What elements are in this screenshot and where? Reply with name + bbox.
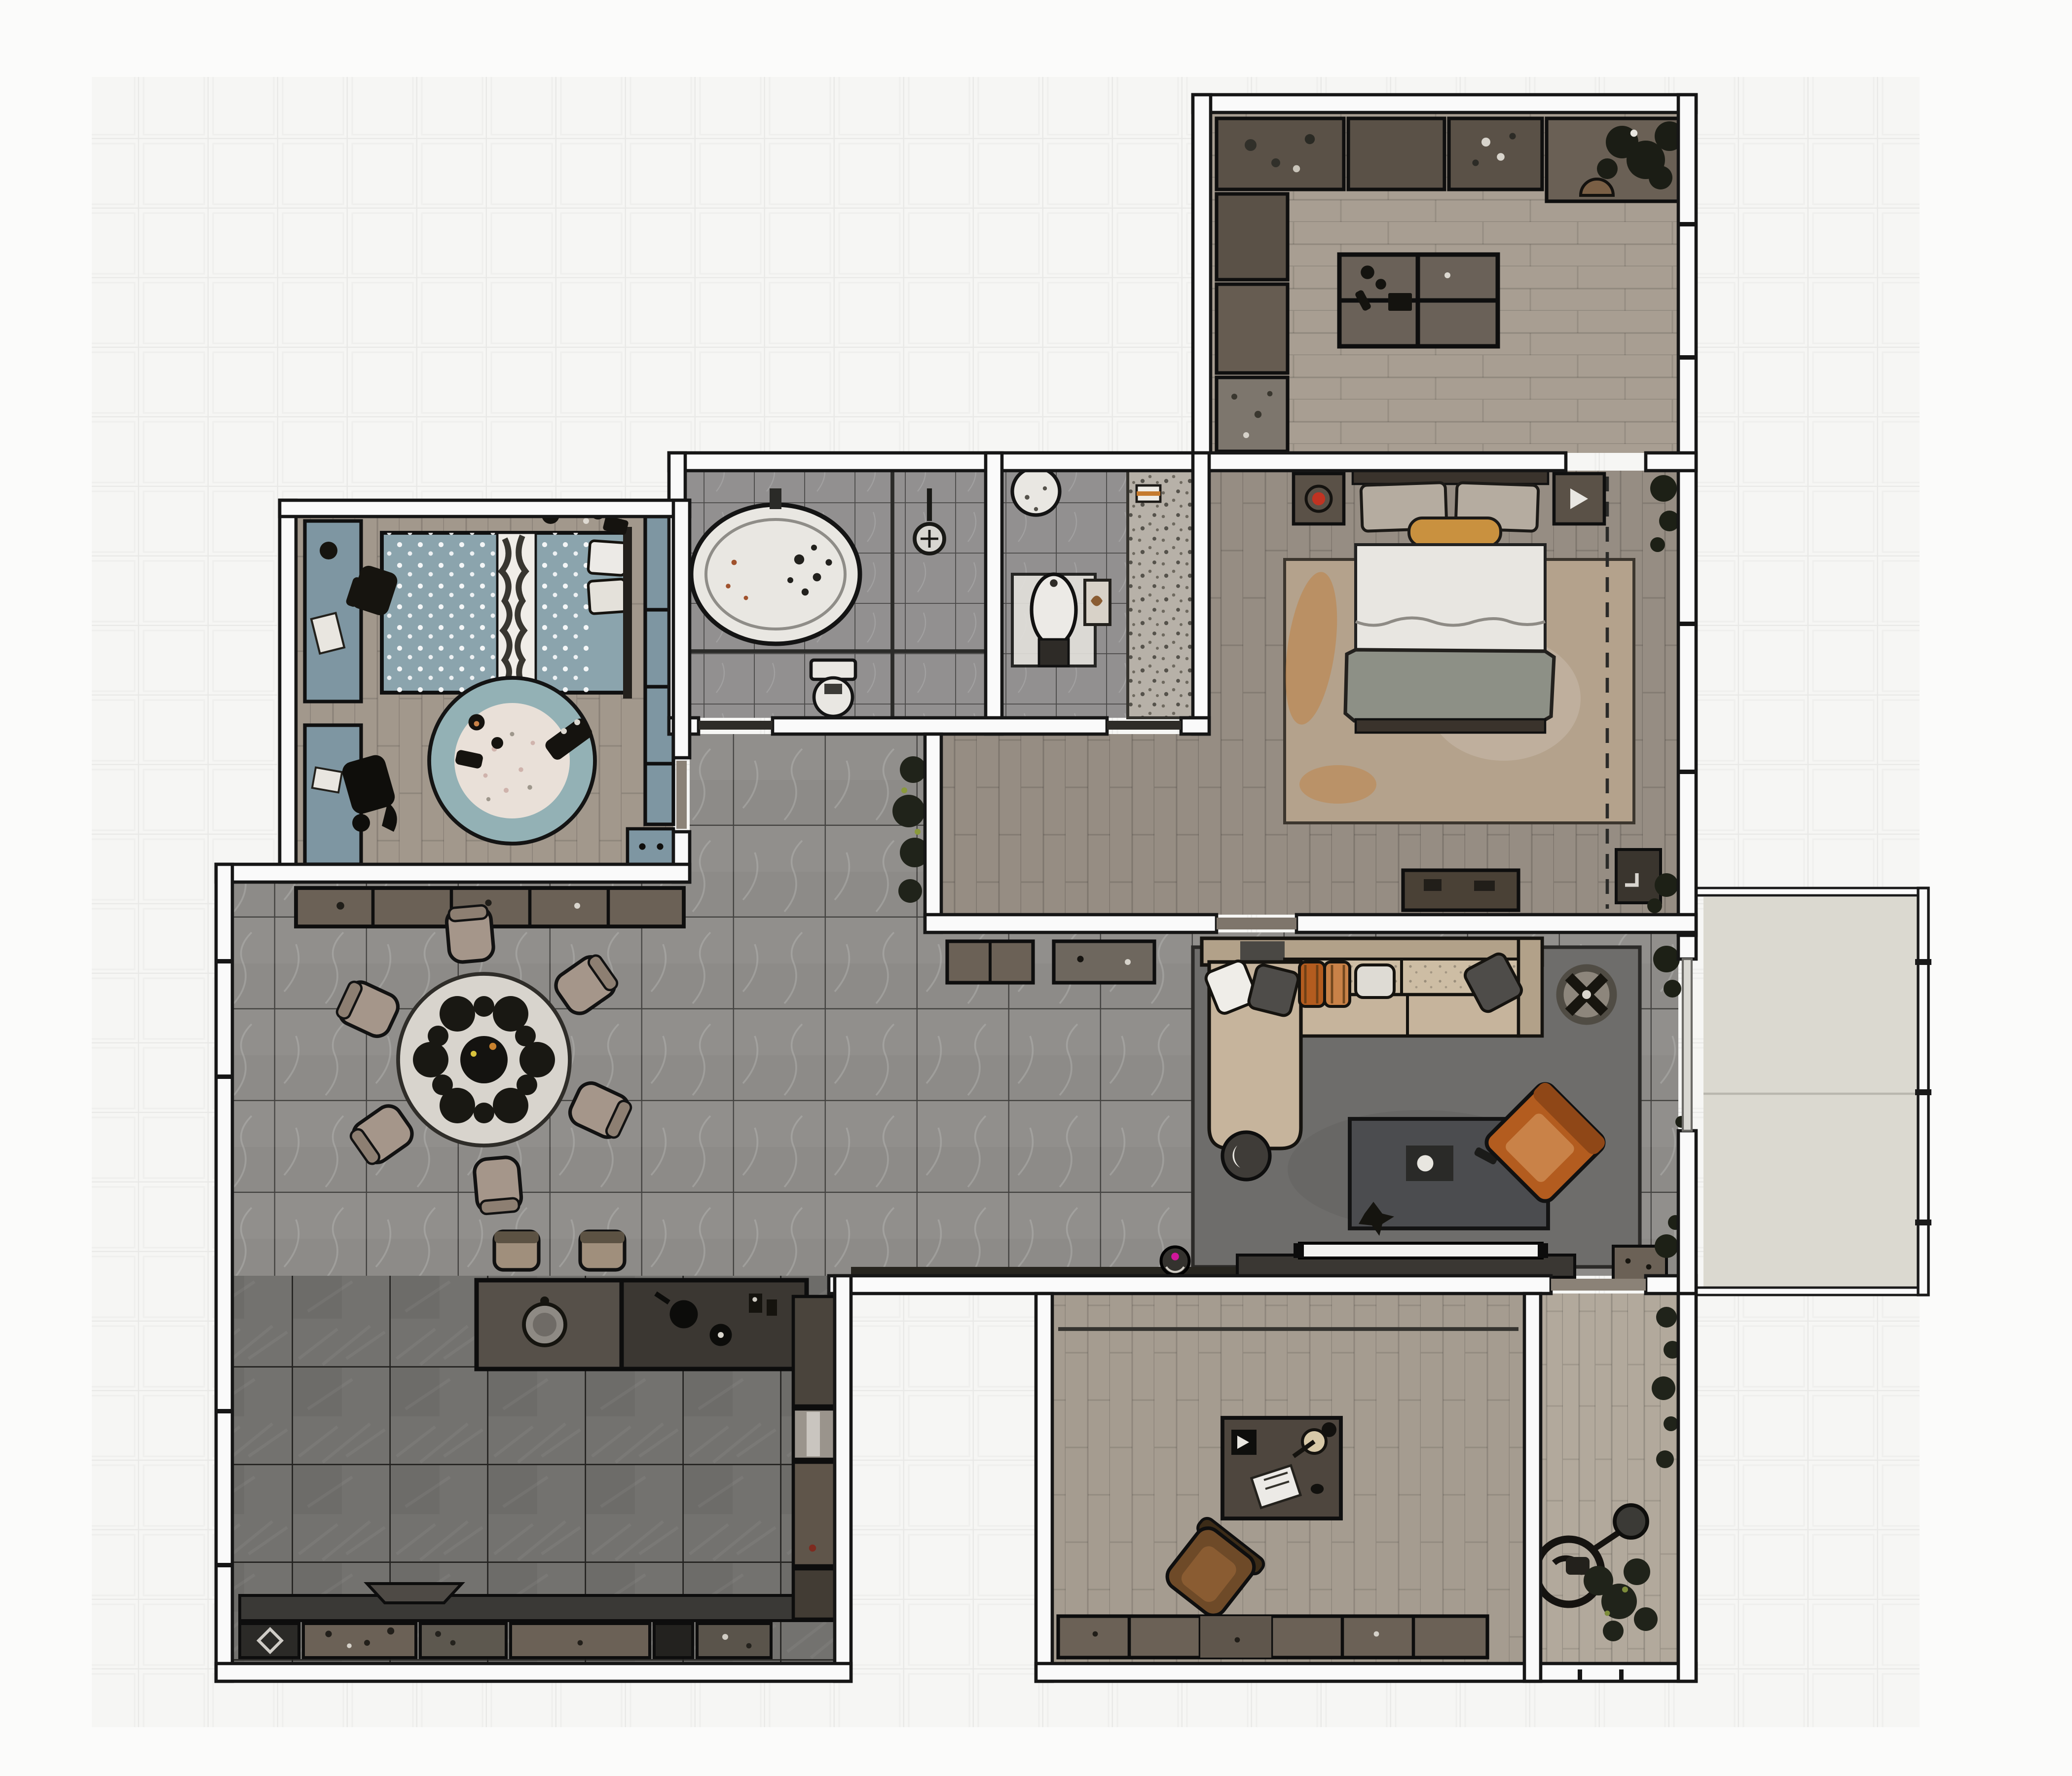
- kitchen-tall-cabinets: [793, 1296, 835, 1619]
- kids-pillow-2: [588, 579, 627, 614]
- bath-tap: [770, 488, 781, 509]
- pattern-throw: [497, 533, 536, 693]
- wall-kids-south: [216, 864, 690, 882]
- wall-bath-divider: [986, 453, 1002, 734]
- wall-study-west: [1036, 1294, 1052, 1681]
- wall-west: [216, 864, 232, 1681]
- wall-greatroom-south-1: [829, 1276, 1551, 1294]
- wall-entry-divider: [1524, 1294, 1541, 1681]
- faucet: [540, 1296, 549, 1305]
- entry-threshold: [1551, 1279, 1646, 1291]
- kids-headboard: [623, 527, 632, 699]
- wall-kids-north: [280, 500, 690, 517]
- tv: [1299, 1243, 1542, 1258]
- shower-room-threshold: [1107, 721, 1181, 730]
- pillow-gray: [1247, 963, 1299, 1017]
- sofa-back-item: [1240, 941, 1285, 962]
- kids-door-threshold: [676, 761, 687, 829]
- wall-office-west: [1193, 95, 1211, 471]
- kids-round-rug: [429, 678, 595, 844]
- kitchen-base-cabinets: [240, 1624, 771, 1658]
- duvet: [1356, 545, 1545, 654]
- study-cabinets: [1058, 1616, 1487, 1658]
- desk-mouse: [1311, 1484, 1324, 1494]
- robot-vacuum: [1161, 1247, 1189, 1275]
- desk-item: [320, 542, 337, 559]
- bedroom-threshold: [1217, 918, 1296, 929]
- wall-study-south: [1036, 1664, 1696, 1681]
- kitchen-island: [477, 1280, 807, 1369]
- pillow-light: [1356, 965, 1394, 998]
- bathroom-threshold: [699, 721, 773, 730]
- desk-headphones: [1322, 1422, 1336, 1437]
- kids-pillow-1: [588, 541, 627, 576]
- pillow-orange-2: [1325, 962, 1350, 1006]
- kitchen-counter-strip: [240, 1595, 835, 1621]
- headboard: [1353, 471, 1548, 484]
- office-island: [1339, 255, 1498, 346]
- side-table: [1222, 1132, 1270, 1180]
- wall-hall-south-2: [1296, 915, 1696, 932]
- wall-east-upper: [1678, 95, 1696, 935]
- wall-balcony-north-jamb: [1678, 935, 1696, 959]
- wall-bath-south-2: [773, 718, 1107, 734]
- wall-shower-east: [1193, 453, 1209, 734]
- rug-orange-streak-2: [1299, 765, 1376, 804]
- floor-plan-canvas: [0, 0, 2072, 1776]
- walk-in-shower: [1128, 471, 1193, 718]
- wall-bath-south-3: [1181, 718, 1209, 734]
- wall-mid-horizontal-2: [1646, 453, 1696, 471]
- wall-kitchen-south: [216, 1664, 851, 1681]
- bolster-pillow: [1409, 518, 1501, 546]
- pillow-orange-1: [1299, 962, 1325, 1006]
- nightstand-lamp: [1312, 492, 1325, 505]
- centerpiece: [460, 1036, 508, 1083]
- planter: [1560, 968, 1613, 1021]
- credenza-gray: [1054, 941, 1154, 983]
- wall-east-lower: [1678, 1294, 1696, 1681]
- counter-sink-front: [367, 1584, 462, 1603]
- wall-kids-west: [280, 500, 296, 882]
- mirror-disc: [1615, 1505, 1647, 1538]
- wall-kids-east-1: [673, 500, 690, 758]
- wall-balcony-south-jamb: [1678, 1131, 1696, 1294]
- floor-plan-svg: [0, 0, 2072, 1776]
- wall-kitchen-east: [835, 1276, 851, 1681]
- wall-corridor-divider: [925, 734, 941, 932]
- kids-nightstand: [628, 829, 673, 864]
- balcony-glass-door: [1683, 959, 1692, 1131]
- pedestal-basin: [1012, 574, 1095, 666]
- foot-bench: [1356, 719, 1545, 733]
- bed-blanket: [1345, 650, 1554, 722]
- study-desk: [1222, 1418, 1341, 1518]
- wall-mid-horizontal: [669, 453, 1566, 471]
- wall-office-north: [1193, 95, 1696, 112]
- toilet: [811, 660, 855, 716]
- bedroom-dresser: [1403, 870, 1518, 910]
- wall-hall-south-1: [925, 915, 1217, 932]
